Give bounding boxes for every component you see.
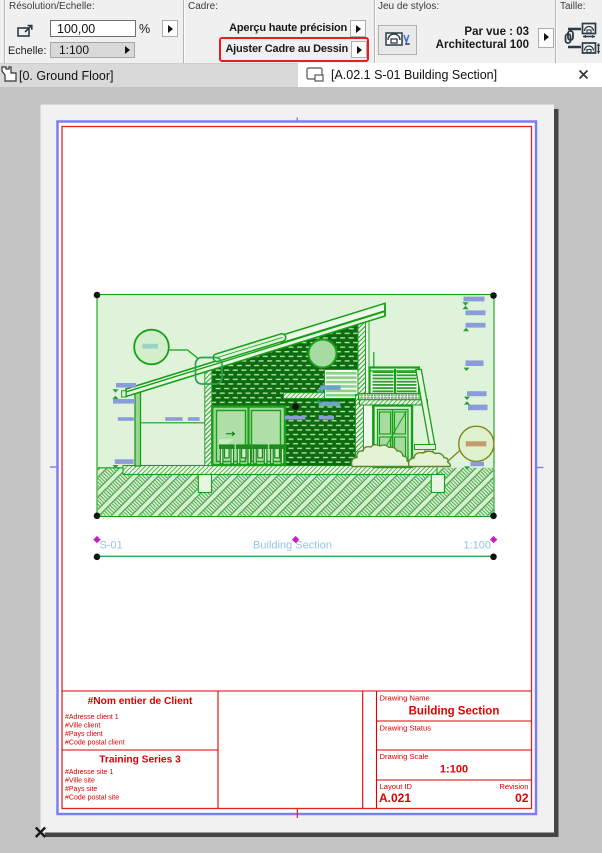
svg-text:S-01: S-01 [100,540,123,552]
svg-text:#Adresse site 1: #Adresse site 1 [65,769,113,776]
svg-text:02: 02 [515,791,529,805]
svg-text:Building Section: Building Section [253,540,332,552]
svg-text:#Ville site: #Ville site [65,778,95,785]
svg-text:Layout ID: Layout ID [380,782,413,791]
svg-text:#Pays client: #Pays client [65,731,103,738]
svg-text:#Adresse client 1: #Adresse client 1 [65,714,119,721]
svg-text:Building Section: Building Section [409,706,500,718]
svg-text:1:100: 1:100 [463,540,491,552]
svg-text:#Code postal client: #Code postal client [65,740,125,747]
svg-text:Drawing Scale: Drawing Scale [380,752,429,761]
svg-text:Drawing Name: Drawing Name [380,694,430,703]
svg-text:#Ville client: #Ville client [65,723,100,730]
svg-text:Training Series 3: Training Series 3 [99,755,181,766]
svg-text:#Nom entier de Client: #Nom entier de Client [88,696,193,707]
svg-text:1:100: 1:100 [440,764,468,776]
svg-text:#Code postal site: #Code postal site [65,795,119,802]
svg-text:A.021: A.021 [379,791,411,805]
svg-text:#Pays site: #Pays site [65,786,97,793]
svg-text:Drawing Status: Drawing Status [380,724,432,733]
svg-text:Revision: Revision [499,782,528,791]
